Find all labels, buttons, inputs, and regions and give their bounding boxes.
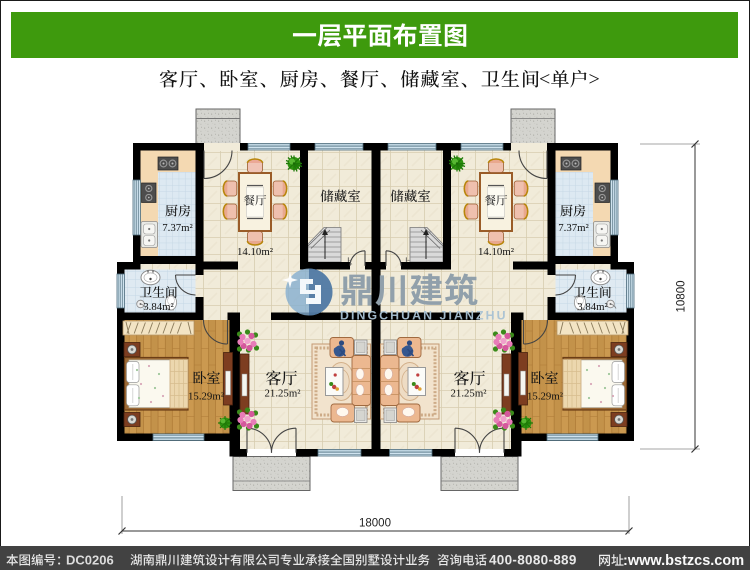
svg-text:3.84m²: 3.84m² [577, 301, 608, 313]
svg-text:DINGCHUAN JIANZHU: DINGCHUAN JIANZHU [340, 309, 508, 323]
svg-text:7.37m²: 7.37m² [558, 222, 589, 234]
svg-text:14.10m²: 14.10m² [478, 246, 514, 258]
svg-text:10800: 10800 [676, 281, 688, 313]
svg-text:3.84m²: 3.84m² [143, 301, 174, 313]
svg-text:14.10m²: 14.10m² [237, 246, 273, 258]
svg-text:15.29m²: 15.29m² [527, 391, 563, 403]
svg-text:15.29m²: 15.29m² [188, 391, 224, 403]
svg-text:400-8080-889: 400-8080-889 [489, 553, 577, 568]
svg-text:7.37m²: 7.37m² [162, 222, 193, 234]
svg-text:21.25m²: 21.25m² [451, 388, 487, 400]
svg-text::www.bstzcs.com: :www.bstzcs.com [623, 553, 744, 569]
svg-text:21.25m²: 21.25m² [265, 388, 301, 400]
svg-text:>: > [589, 69, 600, 91]
svg-text:DC0206: DC0206 [66, 553, 114, 568]
svg-text:<: < [539, 69, 550, 91]
svg-text:18000: 18000 [359, 518, 391, 530]
